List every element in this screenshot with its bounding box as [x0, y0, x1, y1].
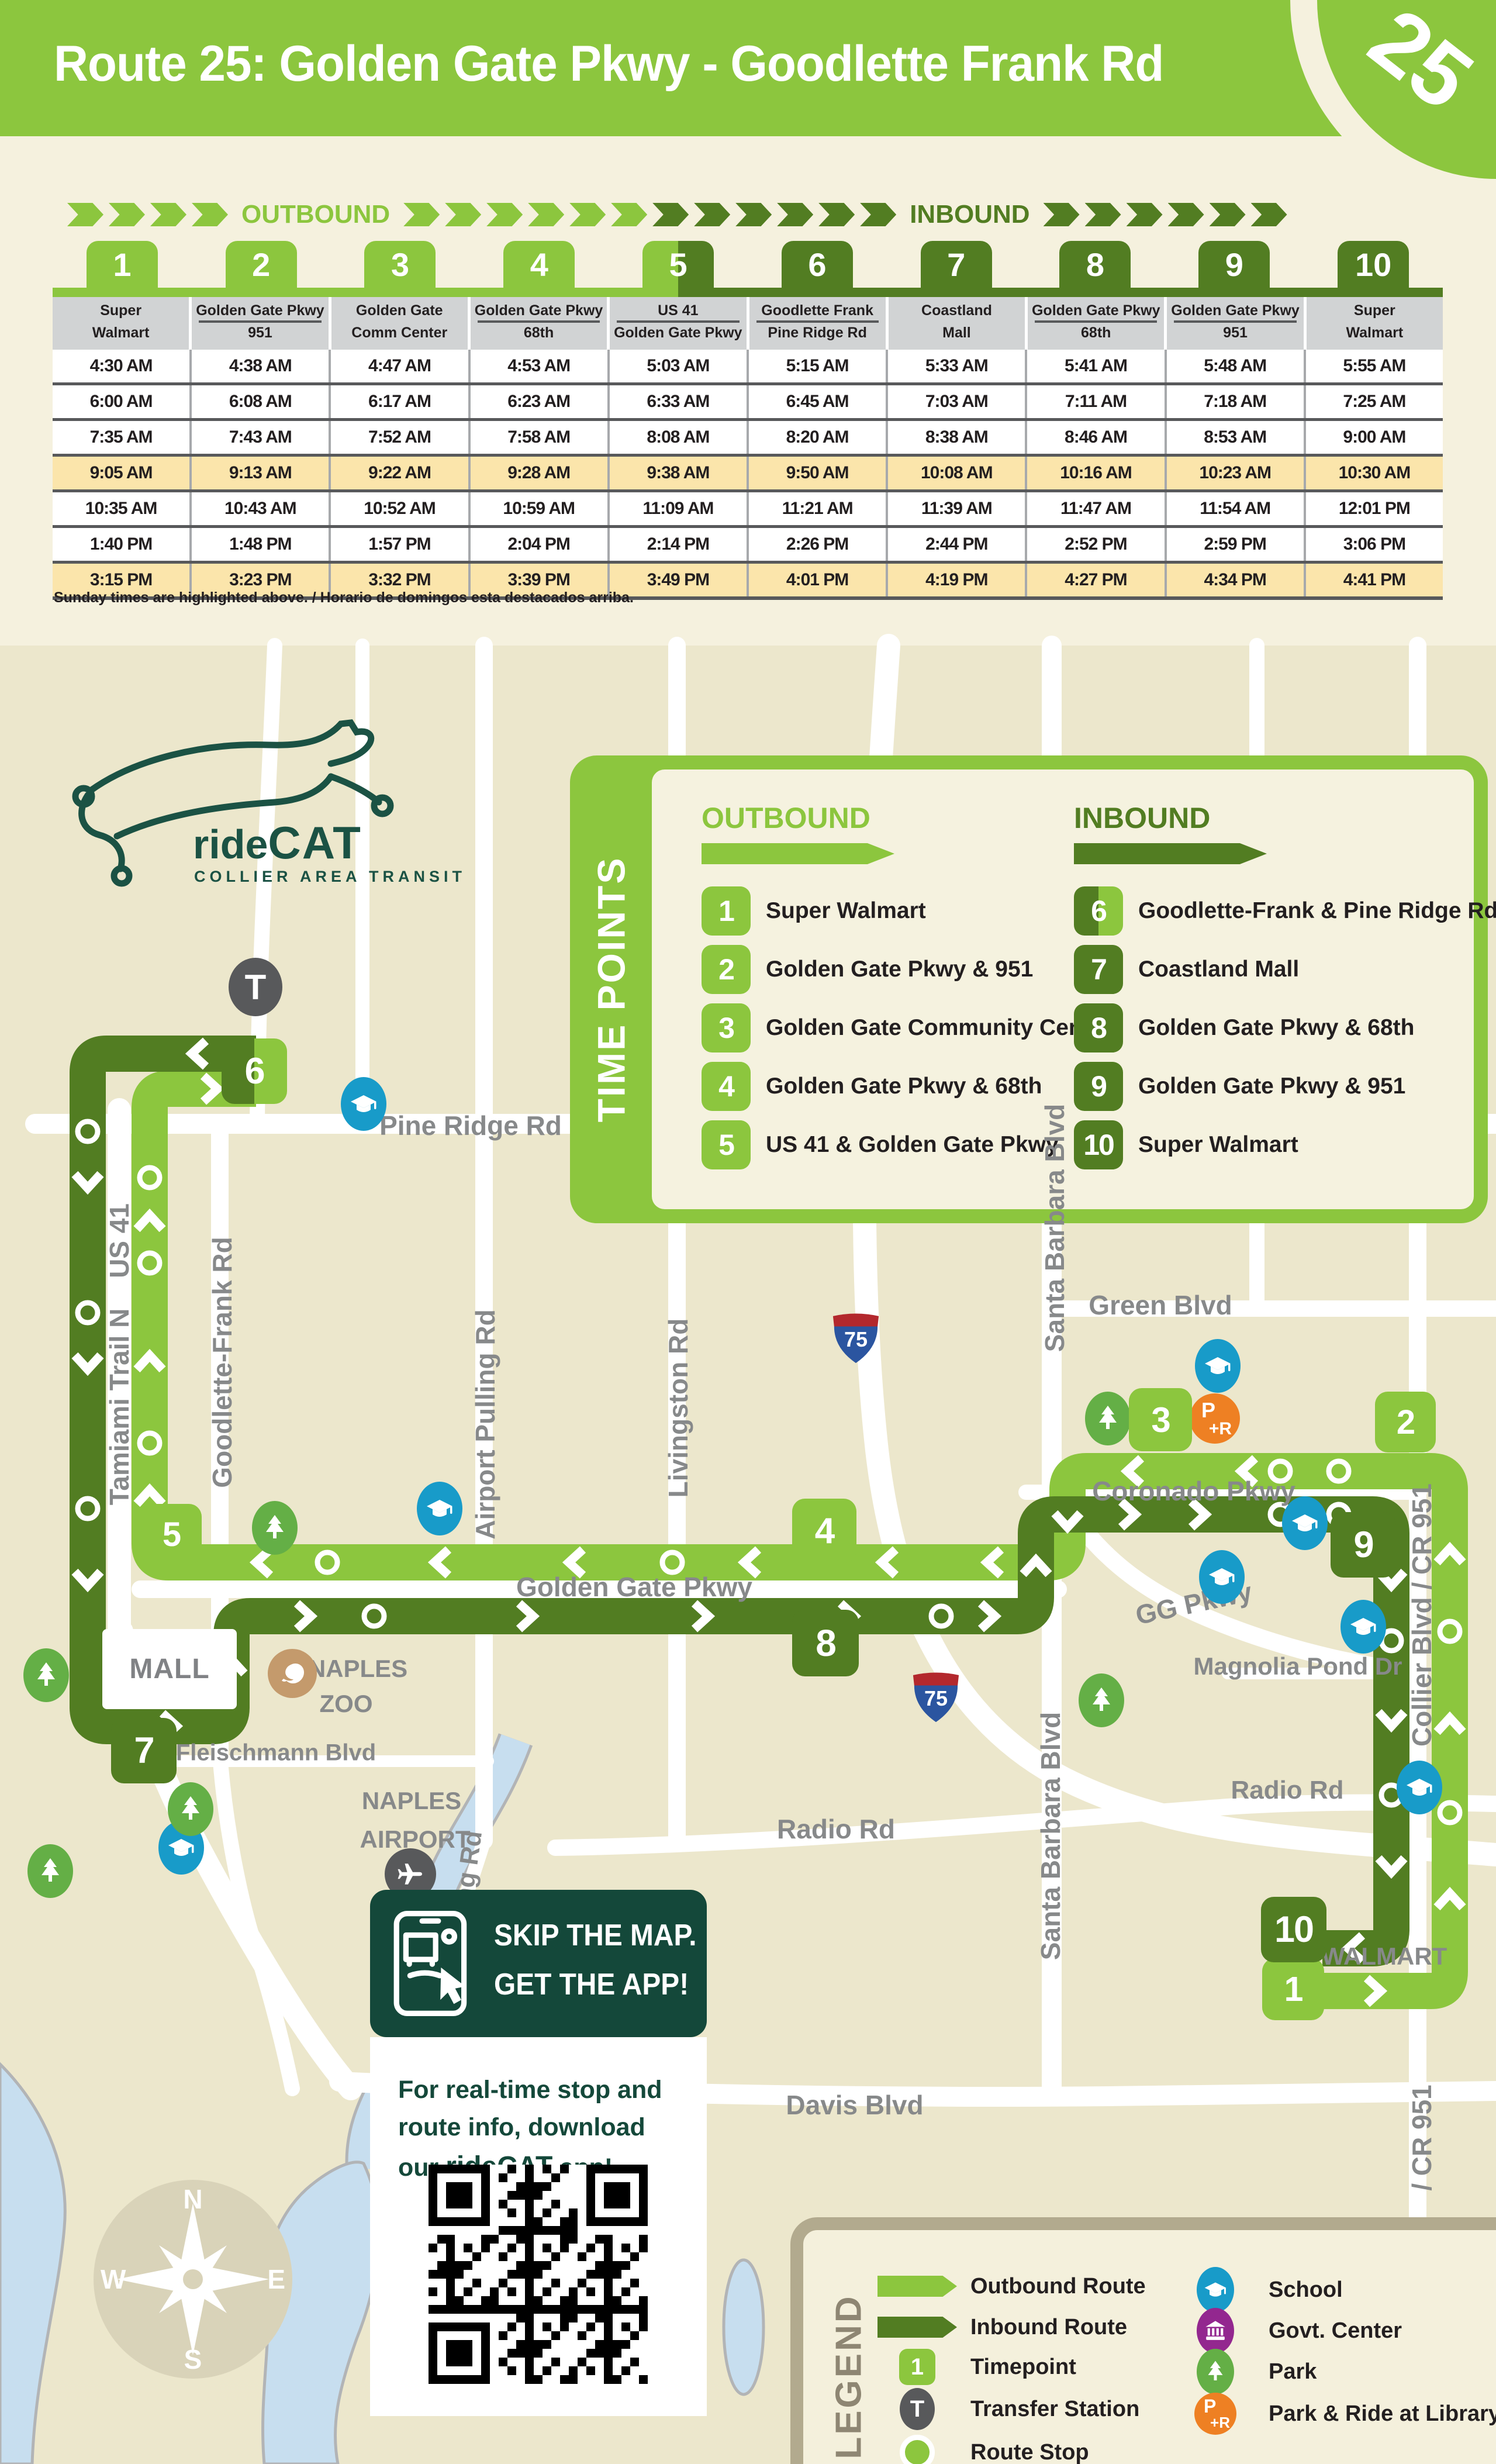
column-header-line1: Coastland — [889, 302, 1025, 319]
timepoints-panel: TIME POINTS OUTBOUND 1 Super Walmart 2 G… — [570, 755, 1488, 1223]
timepoint-tab: 8 — [1026, 241, 1165, 288]
time-cell: 2:26 PM — [749, 528, 886, 561]
column-header-line2: Walmart — [1307, 324, 1443, 341]
ridecat-tagline: COLLIER AREA TRANSIT — [194, 868, 466, 886]
time-cell: 11:09 AM — [610, 492, 747, 525]
timepoint-tab-number: 3 — [364, 241, 436, 288]
i75-shield-icon: 75 — [910, 1671, 962, 1727]
road-label: Collier Blvd / CR 951 — [1406, 1483, 1438, 1747]
timepoint-label: Super Walmart — [1138, 1132, 1298, 1158]
time-cell: 8:38 AM — [888, 421, 1025, 454]
lion-icon — [278, 1659, 306, 1687]
poi-label: ZOO — [320, 1690, 373, 1718]
time-cell: 11:47 AM — [1027, 492, 1164, 525]
time-cell: 1:48 PM — [192, 528, 329, 561]
ridecat-wordmark: rideCAT — [193, 816, 362, 869]
road-label: Radio Rd — [777, 1813, 895, 1845]
timepoint-label: Golden Gate Pkwy & 951 — [1138, 1074, 1405, 1099]
timepoint-badge: 8 — [1074, 1003, 1123, 1052]
column-header-line2: Pine Ridge Rd — [749, 324, 886, 341]
inbound-timepoint-list: 6 Goodlette-Frank & Pine Ridge Rd 7 Coas… — [1074, 882, 1496, 1174]
schedule-row: 4:30 AM 4:38 AM 4:47 AM 4:53 AM 5:03 AM … — [53, 350, 1443, 385]
school-icon — [1282, 1496, 1328, 1550]
timepoint-item: 2 Golden Gate Pkwy & 951 — [702, 940, 1112, 999]
time-cell: 5:48 AM — [1167, 350, 1304, 382]
time-cell: 1:57 PM — [331, 528, 468, 561]
road-label: / CR 951 — [1406, 2085, 1438, 2191]
park-icon — [27, 1844, 73, 1898]
map-timepoint-badge: 2 — [1375, 1392, 1436, 1452]
graduation-cap-icon — [426, 1495, 454, 1523]
timepoint-label: Super Walmart — [766, 898, 926, 924]
i75-shield-icon: 75 — [830, 1312, 882, 1368]
time-cell: 4:01 PM — [749, 564, 886, 596]
time-cell: 2:52 PM — [1027, 528, 1164, 561]
timepoint-badge: 6 — [1074, 886, 1123, 936]
inbound-arrow-icon — [1074, 843, 1267, 864]
timepoint-tab-number: 1 — [87, 241, 158, 288]
wordmark-ride: ride — [193, 822, 268, 867]
time-cell: 10:23 AM — [1167, 457, 1304, 489]
column-header-line1: Golden Gate — [331, 302, 468, 319]
time-cell: 9:00 AM — [1306, 421, 1443, 454]
promo-body-line2: route info, download — [398, 2113, 645, 2142]
time-cell: 4:19 PM — [888, 564, 1025, 596]
graduation-cap-icon — [167, 1834, 195, 1862]
timepoint-label: Golden Gate Pkwy & 68th — [1138, 1015, 1414, 1041]
park-icon — [1085, 1392, 1131, 1445]
timepoint-badge: 7 — [1074, 945, 1123, 994]
column-header-line1: Golden Gate Pkwy — [471, 302, 607, 319]
time-cell: 7:58 AM — [471, 421, 607, 454]
timepoint-tab: 7 — [887, 241, 1026, 288]
time-cell: 5:15 AM — [749, 350, 886, 382]
time-cell: 12:01 PM — [1306, 492, 1443, 525]
page-title: Route 25: Golden Gate Pkwy - Goodlette F… — [54, 35, 1163, 93]
legend-item-school: School — [1166, 2271, 1343, 2308]
outbound-arrow-icon — [702, 843, 894, 864]
road-label: Tamiami Trail N — [103, 1309, 135, 1506]
time-cell: 9:28 AM — [471, 457, 607, 489]
timepoint-item: 3 Golden Gate Community Center — [702, 999, 1112, 1057]
tree-icon — [1094, 1404, 1122, 1433]
time-cell: 4:34 PM — [1167, 564, 1304, 596]
time-cell: 9:13 AM — [192, 457, 329, 489]
time-cell: 2:44 PM — [888, 528, 1025, 561]
time-cell: 6:33 AM — [610, 385, 747, 418]
column-header-line2: Golden Gate Pkwy — [610, 324, 746, 341]
schedule-column-header: Golden Gate Comm Center — [331, 297, 468, 351]
timepoint-tab: 6 — [748, 241, 887, 288]
timepoint-tab: 10 — [1304, 241, 1443, 288]
time-cell: 4:30 AM — [53, 350, 189, 382]
time-cell: 9:22 AM — [331, 457, 468, 489]
park-and-ride-icon: P +R — [1190, 1393, 1240, 1444]
road-label: Radio Rd — [1231, 1776, 1343, 1805]
govt-center-icon — [1197, 2308, 1234, 2353]
time-cell: 2:04 PM — [471, 528, 607, 561]
timepoint-tab-number: 10 — [1338, 241, 1409, 288]
time-cell: 5:41 AM — [1027, 350, 1164, 382]
time-cell: 7:43 AM — [192, 421, 329, 454]
legend-item-govt: Govt. Center — [1166, 2312, 1402, 2349]
timepoint-item: 9 Golden Gate Pkwy & 951 — [1074, 1057, 1496, 1116]
timepoint-tab: 2 — [192, 241, 331, 288]
schedule-row: 10:35 AM 10:43 AM 10:52 AM 10:59 AM 11:0… — [53, 492, 1443, 528]
graduation-cap-icon — [350, 1090, 378, 1118]
timepoint-tab-number: 4 — [503, 241, 575, 288]
timepoint-item: 1 Super Walmart — [702, 882, 1112, 940]
park-icon — [168, 1782, 213, 1836]
route-brochure: Route 25: Golden Gate Pkwy - Goodlette F… — [0, 0, 1496, 2464]
road-label: Pine Ridge Rd — [379, 1110, 562, 1141]
outbound-chevrons-icon — [403, 203, 647, 226]
map-timepoint-badge: 10 — [1261, 1897, 1326, 1962]
transfer-station-icon: T — [229, 958, 282, 1016]
column-header-line1: Super — [1307, 302, 1443, 319]
road-label: Airport Pulling Rd — [469, 1309, 501, 1540]
timepoint-label: Golden Gate Community Center — [766, 1015, 1112, 1041]
park-icon — [1079, 1673, 1124, 1727]
column-header-line2: Walmart — [53, 324, 189, 341]
column-header-line1: Golden Gate Pkwy — [1028, 302, 1164, 319]
time-cell: 4:27 PM — [1027, 564, 1164, 596]
time-cell: 8:53 AM — [1167, 421, 1304, 454]
poi-label: NAPLES — [308, 1655, 407, 1683]
map-timepoint-badge: 9 — [1331, 1512, 1396, 1578]
time-cell: 8:46 AM — [1027, 421, 1164, 454]
legend-item-park-ride: P+R Park & Ride at Library — [1166, 2395, 1496, 2432]
timepoint-badge: 4 — [702, 1062, 751, 1111]
time-cell: 6:17 AM — [331, 385, 468, 418]
road-label: Santa Barbara Blvd — [1035, 1712, 1066, 1960]
column-header-divider — [1174, 320, 1296, 323]
timepoint-item: 10 Super Walmart — [1074, 1116, 1496, 1174]
map-timepoint-badge: 7 — [111, 1718, 177, 1783]
column-header-line1: Goodlette Frank — [749, 302, 886, 319]
timepoint-tab: 4 — [469, 241, 609, 288]
compass-west: W — [101, 2263, 126, 2295]
column-header-line2: Comm Center — [331, 324, 468, 341]
qr-code — [429, 2165, 648, 2384]
time-cell: 7:18 AM — [1167, 385, 1304, 418]
road-label: Coronado Pkwy — [1092, 1475, 1295, 1507]
zoo-lion-icon — [268, 1649, 317, 1698]
timepoint-label: Golden Gate Pkwy & 951 — [766, 957, 1033, 982]
promo-line1: SKIP THE MAP. — [494, 1918, 696, 1953]
road-label: Golden Gate Pkwy — [516, 1571, 752, 1603]
timepoint-tab-number: 5 — [642, 241, 714, 288]
road-label: US 41 — [103, 1203, 135, 1278]
promo-body-line1: For real-time stop and — [398, 2076, 662, 2104]
column-header-line1: US 41 — [610, 302, 746, 319]
time-cell: 4:41 PM — [1306, 564, 1443, 596]
column-header-line2: 68th — [471, 324, 607, 341]
schedule-column-header: US 41 Golden Gate Pkwy — [610, 297, 746, 351]
time-cell: 7:25 AM — [1306, 385, 1443, 418]
timepoint-tab: 3 — [331, 241, 470, 288]
school-icon — [1199, 1550, 1245, 1604]
outbound-route-icon — [877, 2276, 957, 2297]
time-cell: 10:52 AM — [331, 492, 468, 525]
time-cell: 6:23 AM — [471, 385, 607, 418]
time-cell: 5:55 AM — [1306, 350, 1443, 382]
road-label: Magnolia Pond Dr — [1194, 1652, 1402, 1680]
timepoint-label: Coastland Mall — [1138, 957, 1299, 982]
graduation-cap-icon — [1208, 1563, 1236, 1591]
timepoint-label: Goodlette-Frank & Pine Ridge Rd — [1138, 898, 1496, 924]
inbound-header: INBOUND — [1074, 801, 1496, 835]
plane-icon — [396, 1860, 424, 1888]
time-cell: 7:35 AM — [53, 421, 189, 454]
schedule-row: 7:35 AM 7:43 AM 7:52 AM 7:58 AM 8:08 AM … — [53, 421, 1443, 457]
timepoint-icon: 1 — [899, 2349, 935, 2385]
column-header-divider — [1035, 320, 1157, 323]
road-label: Goodlette-Frank Rd — [206, 1237, 238, 1488]
legend-item-inbound: Inbound Route — [868, 2308, 1127, 2346]
road-label: Davis Blvd — [786, 2089, 923, 2121]
mall-block: MALL — [102, 1629, 237, 1709]
timepoints-title: TIME POINTS — [570, 755, 652, 1223]
transfer-station-icon: T — [900, 2388, 935, 2430]
time-cell: 7:52 AM — [331, 421, 468, 454]
outbound-header: OUTBOUND — [702, 801, 1112, 835]
column-header-divider — [478, 320, 600, 323]
timepoint-label: Golden Gate Pkwy & 68th — [766, 1074, 1042, 1099]
time-cell: 10:08 AM — [888, 457, 1025, 489]
column-header-line2: 951 — [192, 324, 328, 341]
graduation-cap-icon — [1405, 1773, 1433, 1802]
compass-south: S — [184, 2344, 202, 2375]
legend-item-transfer: T Transfer Station — [868, 2390, 1139, 2428]
timepoint-badge: 1 — [702, 886, 751, 936]
time-cell: 6:45 AM — [749, 385, 886, 418]
timepoint-badge: 10 — [1074, 1120, 1123, 1169]
time-cell: 7:11 AM — [1027, 385, 1164, 418]
tree-icon — [177, 1795, 205, 1823]
time-cell: 10:35 AM — [53, 492, 189, 525]
column-header-divider — [199, 320, 321, 323]
road-label: Fleischmann Blvd — [176, 1740, 376, 1766]
direction-arrows-row: OUTBOUND INBOUND — [67, 201, 1429, 228]
time-cell: 2:59 PM — [1167, 528, 1304, 561]
time-cell: 5:03 AM — [610, 350, 747, 382]
time-cell: 5:33 AM — [888, 350, 1025, 382]
legend-item-timepoint: 1 Timepoint — [868, 2348, 1076, 2386]
timepoint-badge: 9 — [1074, 1062, 1123, 1111]
promo-line2: GET THE APP! — [494, 1967, 689, 2002]
school-icon — [1195, 1339, 1241, 1393]
time-cell: 4:53 AM — [471, 350, 607, 382]
schedule-column-header: Goodlette Frank Pine Ridge Rd — [749, 297, 886, 351]
graduation-cap-icon — [1291, 1509, 1319, 1537]
timepoint-tab: 1 — [53, 241, 192, 288]
tree-icon — [36, 1857, 64, 1885]
timepoint-label: US 41 & Golden Gate Pkwy — [766, 1132, 1059, 1158]
inbound-chevrons-icon — [652, 203, 896, 226]
header-bar: Route 25: Golden Gate Pkwy - Goodlette F… — [0, 0, 1496, 136]
poi-label: NAPLES — [362, 1787, 461, 1815]
timepoint-tab-number: 6 — [782, 241, 853, 288]
time-cell: 8:20 AM — [749, 421, 886, 454]
timepoint-badge: 2 — [702, 945, 751, 994]
app-promo-banner: SKIP THE MAP. GET THE APP! — [370, 1890, 707, 2037]
schedule-column-header: Golden Gate Pkwy 68th — [471, 297, 607, 351]
time-cell: 3:06 PM — [1306, 528, 1443, 561]
time-cell: 10:43 AM — [192, 492, 329, 525]
app-promo-body: For real-time stop and route info, downl… — [370, 2037, 707, 2416]
map-timepoint-badge: 4 — [792, 1499, 856, 1563]
park-icon — [1197, 2349, 1234, 2394]
time-cell: 9:05 AM — [53, 457, 189, 489]
tree-icon — [32, 1661, 60, 1689]
park-and-ride-icon: P+R — [1194, 2393, 1236, 2435]
tree-icon — [1087, 1686, 1115, 1714]
timepoint-tab-number: 2 — [226, 241, 297, 288]
school-icon — [1397, 1761, 1442, 1814]
time-cell: 6:00 AM — [53, 385, 189, 418]
time-cell: 10:59 AM — [471, 492, 607, 525]
time-cell: 4:38 AM — [192, 350, 329, 382]
column-header-line1: Golden Gate Pkwy — [192, 302, 328, 319]
inbound-route-icon — [877, 2317, 957, 2338]
schedule-column-header: Golden Gate Pkwy 951 — [192, 297, 328, 351]
school-icon — [341, 1077, 386, 1131]
schedule-column-header: Coastland Mall — [889, 297, 1025, 351]
column-header-line2: 68th — [1028, 324, 1164, 341]
tree-icon — [261, 1514, 289, 1542]
timepoint-item: 6 Goodlette-Frank & Pine Ridge Rd — [1074, 882, 1496, 940]
sunday-footnote: Sunday times are highlighted above. / Ho… — [54, 589, 634, 606]
compass-rose: N E S W — [94, 2180, 292, 2379]
column-header-divider — [756, 320, 879, 323]
timepoint-tab: 9 — [1165, 241, 1304, 288]
school-icon — [417, 1482, 462, 1535]
schedule-row: 1:40 PM 1:48 PM 1:57 PM 2:04 PM 2:14 PM … — [53, 528, 1443, 564]
phone-app-icon — [391, 1907, 479, 2020]
schedule-column-header: Golden Gate Pkwy 68th — [1028, 297, 1164, 351]
timepoint-item: 7 Coastland Mall — [1074, 940, 1496, 999]
school-icon — [1197, 2267, 1234, 2313]
schedule-header-row: Super Walmart Golden Gate Pkwy 951 Golde… — [53, 297, 1443, 354]
timepoint-tab: 5 — [609, 241, 748, 288]
timepoint-number-tabs: 1 2 3 4 5 6 7 8 9 10 — [53, 241, 1443, 288]
map-timepoint-badge: 8 — [792, 1610, 859, 1676]
park-icon — [23, 1648, 69, 1702]
wordmark-cat: CAT — [268, 817, 362, 868]
road-label: Green Blvd — [1089, 1289, 1232, 1321]
time-cell: 11:39 AM — [888, 492, 1025, 525]
time-cell: 1:40 PM — [53, 528, 189, 561]
route-stop-icon — [900, 2435, 935, 2464]
timepoint-item: 8 Golden Gate Pkwy & 68th — [1074, 999, 1496, 1057]
map-timepoint-badge: 1 — [1262, 1958, 1324, 2020]
road-label: Santa Barbara Blvd — [1039, 1104, 1070, 1352]
column-header-line2: Mall — [889, 324, 1025, 341]
outbound-label: OUTBOUND — [241, 200, 390, 229]
schedule-column-header: Super Walmart — [1307, 297, 1443, 351]
timepoint-badge: 5 — [702, 1120, 751, 1169]
graduation-cap-icon — [1204, 1352, 1232, 1380]
school-icon — [1340, 1600, 1386, 1654]
legend-item-park: Park — [1166, 2353, 1317, 2390]
graduation-cap-icon — [1349, 1613, 1377, 1641]
column-header-line2: 951 — [1167, 324, 1303, 341]
compass-east: E — [267, 2263, 285, 2295]
timepoint-badge: 3 — [702, 1003, 751, 1052]
time-cell: 10:16 AM — [1027, 457, 1164, 489]
timepoints-inbound-column: INBOUND 6 Goodlette-Frank & Pine Ridge R… — [1074, 801, 1496, 1174]
timepoint-tab-number: 8 — [1059, 241, 1131, 288]
schedule-column-header: Super Walmart — [53, 297, 189, 351]
time-cell: 6:08 AM — [192, 385, 329, 418]
park-icon — [252, 1501, 298, 1555]
column-header-line1: Super — [53, 302, 189, 319]
time-cell: 9:50 AM — [749, 457, 886, 489]
time-cell: 11:21 AM — [749, 492, 886, 525]
time-cell: 2:14 PM — [610, 528, 747, 561]
time-cell: 8:08 AM — [610, 421, 747, 454]
inbound-chevrons-icon — [1044, 203, 1287, 226]
tab-color-band — [53, 288, 1443, 297]
timepoint-tab-number: 7 — [921, 241, 992, 288]
time-cell: 7:03 AM — [888, 385, 1025, 418]
time-cell: 10:30 AM — [1306, 457, 1443, 489]
legend-item-stop: Route Stop — [868, 2434, 1089, 2464]
road-label: Livingston Rd — [662, 1319, 694, 1498]
legend-item-outbound: Outbound Route — [868, 2268, 1146, 2305]
timepoint-tab-number: 9 — [1198, 241, 1270, 288]
schedule-row: 9:05 AM 9:13 AM 9:22 AM 9:28 AM 9:38 AM … — [53, 457, 1443, 492]
map-timepoint-badge: 3 — [1129, 1388, 1192, 1451]
schedule-body: 4:30 AM 4:38 AM 4:47 AM 4:53 AM 5:03 AM … — [53, 350, 1443, 600]
poi-label: WALMART — [1322, 1942, 1447, 1970]
time-cell: 11:54 AM — [1167, 492, 1304, 525]
column-header-divider — [617, 320, 739, 323]
time-cell: 9:38 AM — [610, 457, 747, 489]
compass-north: N — [183, 2183, 202, 2215]
schedule-row: 6:00 AM 6:08 AM 6:17 AM 6:23 AM 6:33 AM … — [53, 385, 1443, 421]
map-timepoint-badge: 6 — [222, 1038, 287, 1104]
time-cell: 4:47 AM — [331, 350, 468, 382]
inbound-label: INBOUND — [910, 200, 1029, 229]
legend-panel: LEGEND Outbound Route Inbound Route 1 Ti… — [790, 2217, 1496, 2464]
schedule-column-header: Golden Gate Pkwy 951 — [1167, 297, 1303, 351]
outbound-chevrons-icon — [67, 203, 228, 226]
map-timepoint-badge: 5 — [141, 1504, 202, 1565]
column-header-line1: Golden Gate Pkwy — [1167, 302, 1303, 319]
